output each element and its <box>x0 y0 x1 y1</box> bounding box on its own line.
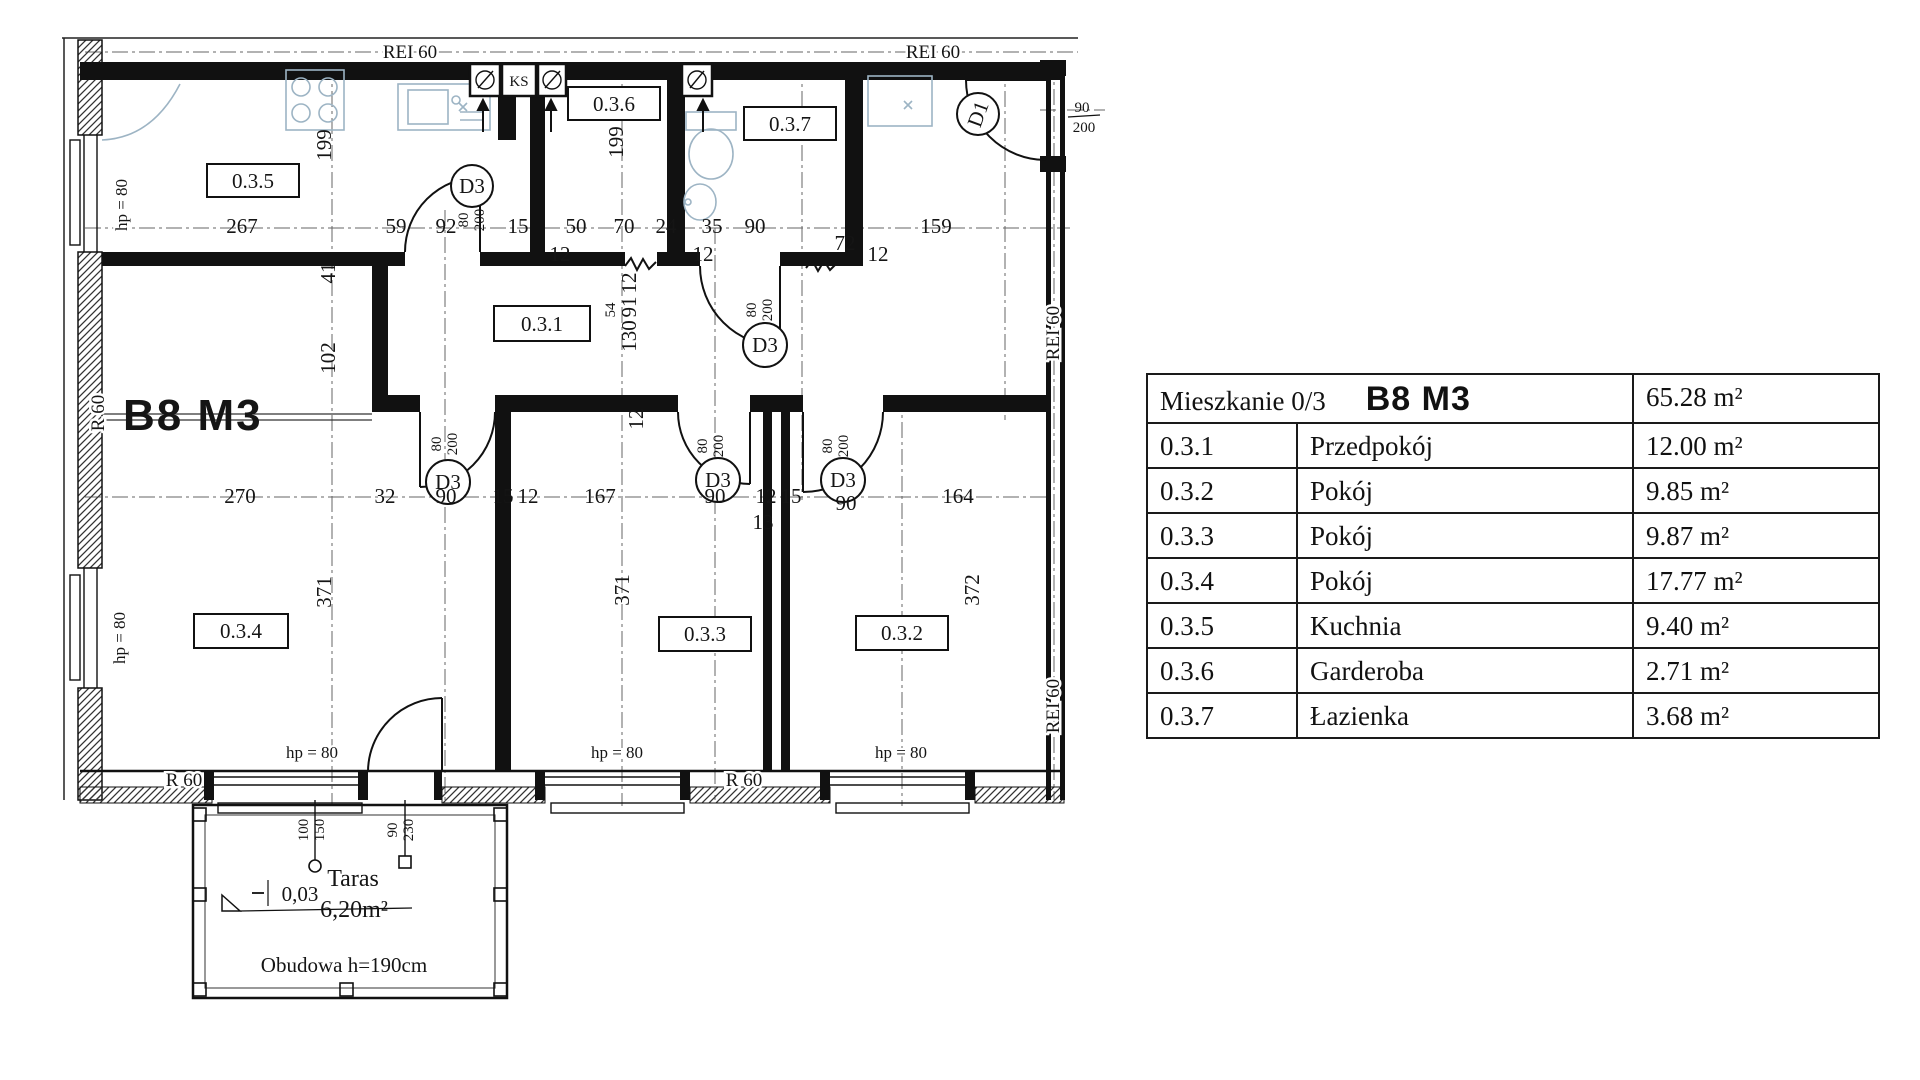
room-tag-032: 0.3.2 <box>881 621 923 645</box>
dim: 15 <box>493 484 514 508</box>
dim: 50 <box>566 214 587 238</box>
door-size-80: 80 <box>429 437 445 452</box>
room-area: 12.00 m² <box>1632 424 1876 467</box>
room-tags: 0.3.5 0.3.6 0.3.7 0.3.1 0.3.4 0.3.3 0.3.… <box>194 87 948 651</box>
door-size-80: 80 <box>456 213 472 228</box>
closet-sparkle-icon <box>904 101 912 109</box>
apartment-area-table: Mieszkanie 0/3 B8 M3 65.28 m² 0.3.1 Prze… <box>1146 373 1880 739</box>
bottom-windows <box>212 777 975 813</box>
rei60-right-lower: REI 60 <box>1043 679 1064 733</box>
terrace-dim-230: 230 <box>401 819 417 842</box>
dim: 59 <box>386 214 407 238</box>
door-size-80: 80 <box>820 439 836 454</box>
hp80-left-lower: hp = 80 <box>110 612 129 664</box>
floor-plan-drawing: KS D3 D3 D3 D3 D3 D1 80 200 80 20 <box>0 0 1110 1080</box>
room-tag-037: 0.3.7 <box>769 112 811 136</box>
window-sill-labels: hp = 80 hp = 80 hp = 80 hp = 80 hp = 80 <box>110 179 927 762</box>
dim: 372 <box>960 574 984 606</box>
dim: 159 <box>920 214 952 238</box>
dim: 12 <box>550 242 571 266</box>
dim: 102 <box>316 342 340 374</box>
dim: 270 <box>224 484 256 508</box>
room-code: 0.3.4 <box>1148 559 1296 602</box>
door-size-80: 80 <box>695 439 711 454</box>
table-row: 0.3.1 Przedpokój 12.00 m² <box>1148 422 1878 467</box>
terrace-door-arc <box>368 698 442 772</box>
room-code: 0.3.6 <box>1148 649 1296 692</box>
room-name: Łazienka <box>1296 694 1632 737</box>
hall-closet-icon <box>868 76 932 126</box>
dim: 15 <box>781 484 802 508</box>
room-code: 0.3.2 <box>1148 469 1296 512</box>
dim: 371 <box>312 576 336 608</box>
dim: 72 <box>835 231 856 255</box>
rei60-top-right: REI 60 <box>906 42 960 63</box>
room-tag-035: 0.3.5 <box>232 169 274 193</box>
door-size-200: 200 <box>472 209 488 232</box>
table-unit-label: B8 M3 <box>1366 380 1471 419</box>
plan-unit-label: B8 M3 <box>123 391 263 440</box>
dim: 13 <box>753 510 774 534</box>
hp80-bottom-2: hp = 80 <box>591 743 643 762</box>
room-area: 9.40 m² <box>1632 604 1876 647</box>
terrace-level: 0,03 <box>282 882 319 906</box>
room-name: Pokój <box>1296 514 1632 557</box>
room-area: 17.77 m² <box>1632 559 1876 602</box>
room-name: Pokój <box>1296 469 1632 512</box>
room-tag-034: 0.3.4 <box>220 619 263 643</box>
toilet-icon <box>686 112 736 130</box>
dim: 41 <box>316 263 340 284</box>
table-row: 0.3.2 Pokój 9.85 m² <box>1148 467 1878 512</box>
dim: 12 <box>624 409 648 430</box>
dims-vertical: 199 199 41 102 54 12 91 130 12 371 371 3… <box>312 126 984 608</box>
rei60-right-upper: REI 60 <box>1043 306 1064 360</box>
dim: 90 <box>436 484 457 508</box>
room-area: 9.87 m² <box>1632 514 1876 557</box>
dim: 130 <box>617 320 641 352</box>
door-size-200: 200 <box>445 433 461 456</box>
dim: 167 <box>584 484 616 508</box>
dim: 35 <box>702 214 723 238</box>
dim: 15 <box>508 214 529 238</box>
dim: 371 <box>610 574 634 606</box>
dim: 12 <box>518 484 539 508</box>
table-row: 0.3.6 Garderoba 2.71 m² <box>1148 647 1878 692</box>
room-area: 2.71 m² <box>1632 649 1876 692</box>
terrace-dim-100: 100 <box>296 819 312 842</box>
door-d3-bath: D3 <box>752 333 778 357</box>
hp80-bottom-3: hp = 80 <box>875 743 927 762</box>
r60-left: R 60 <box>88 395 109 431</box>
dim: 90 <box>705 484 726 508</box>
table-title: Mieszkanie 0/3 <box>1160 386 1326 417</box>
room-tag-031: 0.3.1 <box>521 312 563 336</box>
dim: 199 <box>604 126 628 158</box>
dim: 164 <box>942 484 974 508</box>
dim: 267 <box>226 214 258 238</box>
terrace-dim-90: 90 <box>385 823 401 838</box>
kitchen-counter-curve <box>102 84 180 140</box>
shaft-label-ks: KS <box>509 74 528 90</box>
room-tag-033: 0.3.3 <box>684 622 726 646</box>
scanned-floor-plan-page: KS D3 D3 D3 D3 D3 D1 80 200 80 20 <box>0 0 1920 1080</box>
table-header-row: Mieszkanie 0/3 B8 M3 65.28 m² <box>1148 375 1878 422</box>
room-code: 0.3.5 <box>1148 604 1296 647</box>
dim: 24 <box>656 214 678 238</box>
room-name: Przedpokój <box>1296 424 1632 467</box>
door-d3-kitchen: D3 <box>459 174 485 198</box>
dim: 12 <box>868 242 889 266</box>
door-size-200: 200 <box>711 435 727 458</box>
door-size-80: 80 <box>744 303 760 318</box>
dim: 92 <box>436 214 457 238</box>
sink-sparkle-icon <box>459 103 467 111</box>
room-tag-036: 0.3.6 <box>593 92 635 116</box>
dim: 199 <box>312 129 336 161</box>
room-name: Pokój <box>1296 559 1632 602</box>
room-code: 0.3.1 <box>1148 424 1296 467</box>
entrance-size-90: 90 <box>1075 100 1090 116</box>
terrace-name: Taras <box>327 866 379 892</box>
table-row: 0.3.5 Kuchnia 9.40 m² <box>1148 602 1878 647</box>
table-row: 0.3.4 Pokój 17.77 m² <box>1148 557 1878 602</box>
dim: 12 <box>617 273 641 294</box>
hp80-bottom-1: hp = 80 <box>286 743 338 762</box>
terrace: 100 150 90 230 Taras 6,20m² Obudowa h=19… <box>193 800 507 998</box>
table-total-area: 65.28 m² <box>1632 375 1876 422</box>
room-name: Garderoba <box>1296 649 1632 692</box>
terrace-dim-150: 150 <box>312 819 328 842</box>
dim: 12 <box>756 484 777 508</box>
room-name: Kuchnia <box>1296 604 1632 647</box>
hp80-left-upper: hp = 80 <box>112 179 131 231</box>
door-size-200: 200 <box>836 435 852 458</box>
table-row: 0.3.3 Pokój 9.87 m² <box>1148 512 1878 557</box>
dim: 32 <box>375 484 396 508</box>
dim: 12 <box>693 242 714 266</box>
door-d3-room2: D3 <box>830 468 856 492</box>
r60-bottom-mid: R 60 <box>726 770 762 791</box>
r60-bottom-left: R 60 <box>166 770 202 791</box>
dim: 90 <box>745 214 766 238</box>
dim: 91 <box>617 297 641 318</box>
dim: 90 <box>836 491 857 515</box>
dim: 70 <box>614 214 635 238</box>
room-area: 3.68 m² <box>1632 694 1876 737</box>
door-size-200: 200 <box>760 299 776 322</box>
room-code: 0.3.7 <box>1148 694 1296 737</box>
table-row: 0.3.7 Łazienka 3.68 m² <box>1148 692 1878 737</box>
room-code: 0.3.3 <box>1148 514 1296 557</box>
entrance-size-200: 200 <box>1073 120 1096 136</box>
terrace-enclosure: Obudowa h=190cm <box>261 953 427 977</box>
room-area: 9.85 m² <box>1632 469 1876 512</box>
rei60-top-left: REI 60 <box>383 42 437 63</box>
